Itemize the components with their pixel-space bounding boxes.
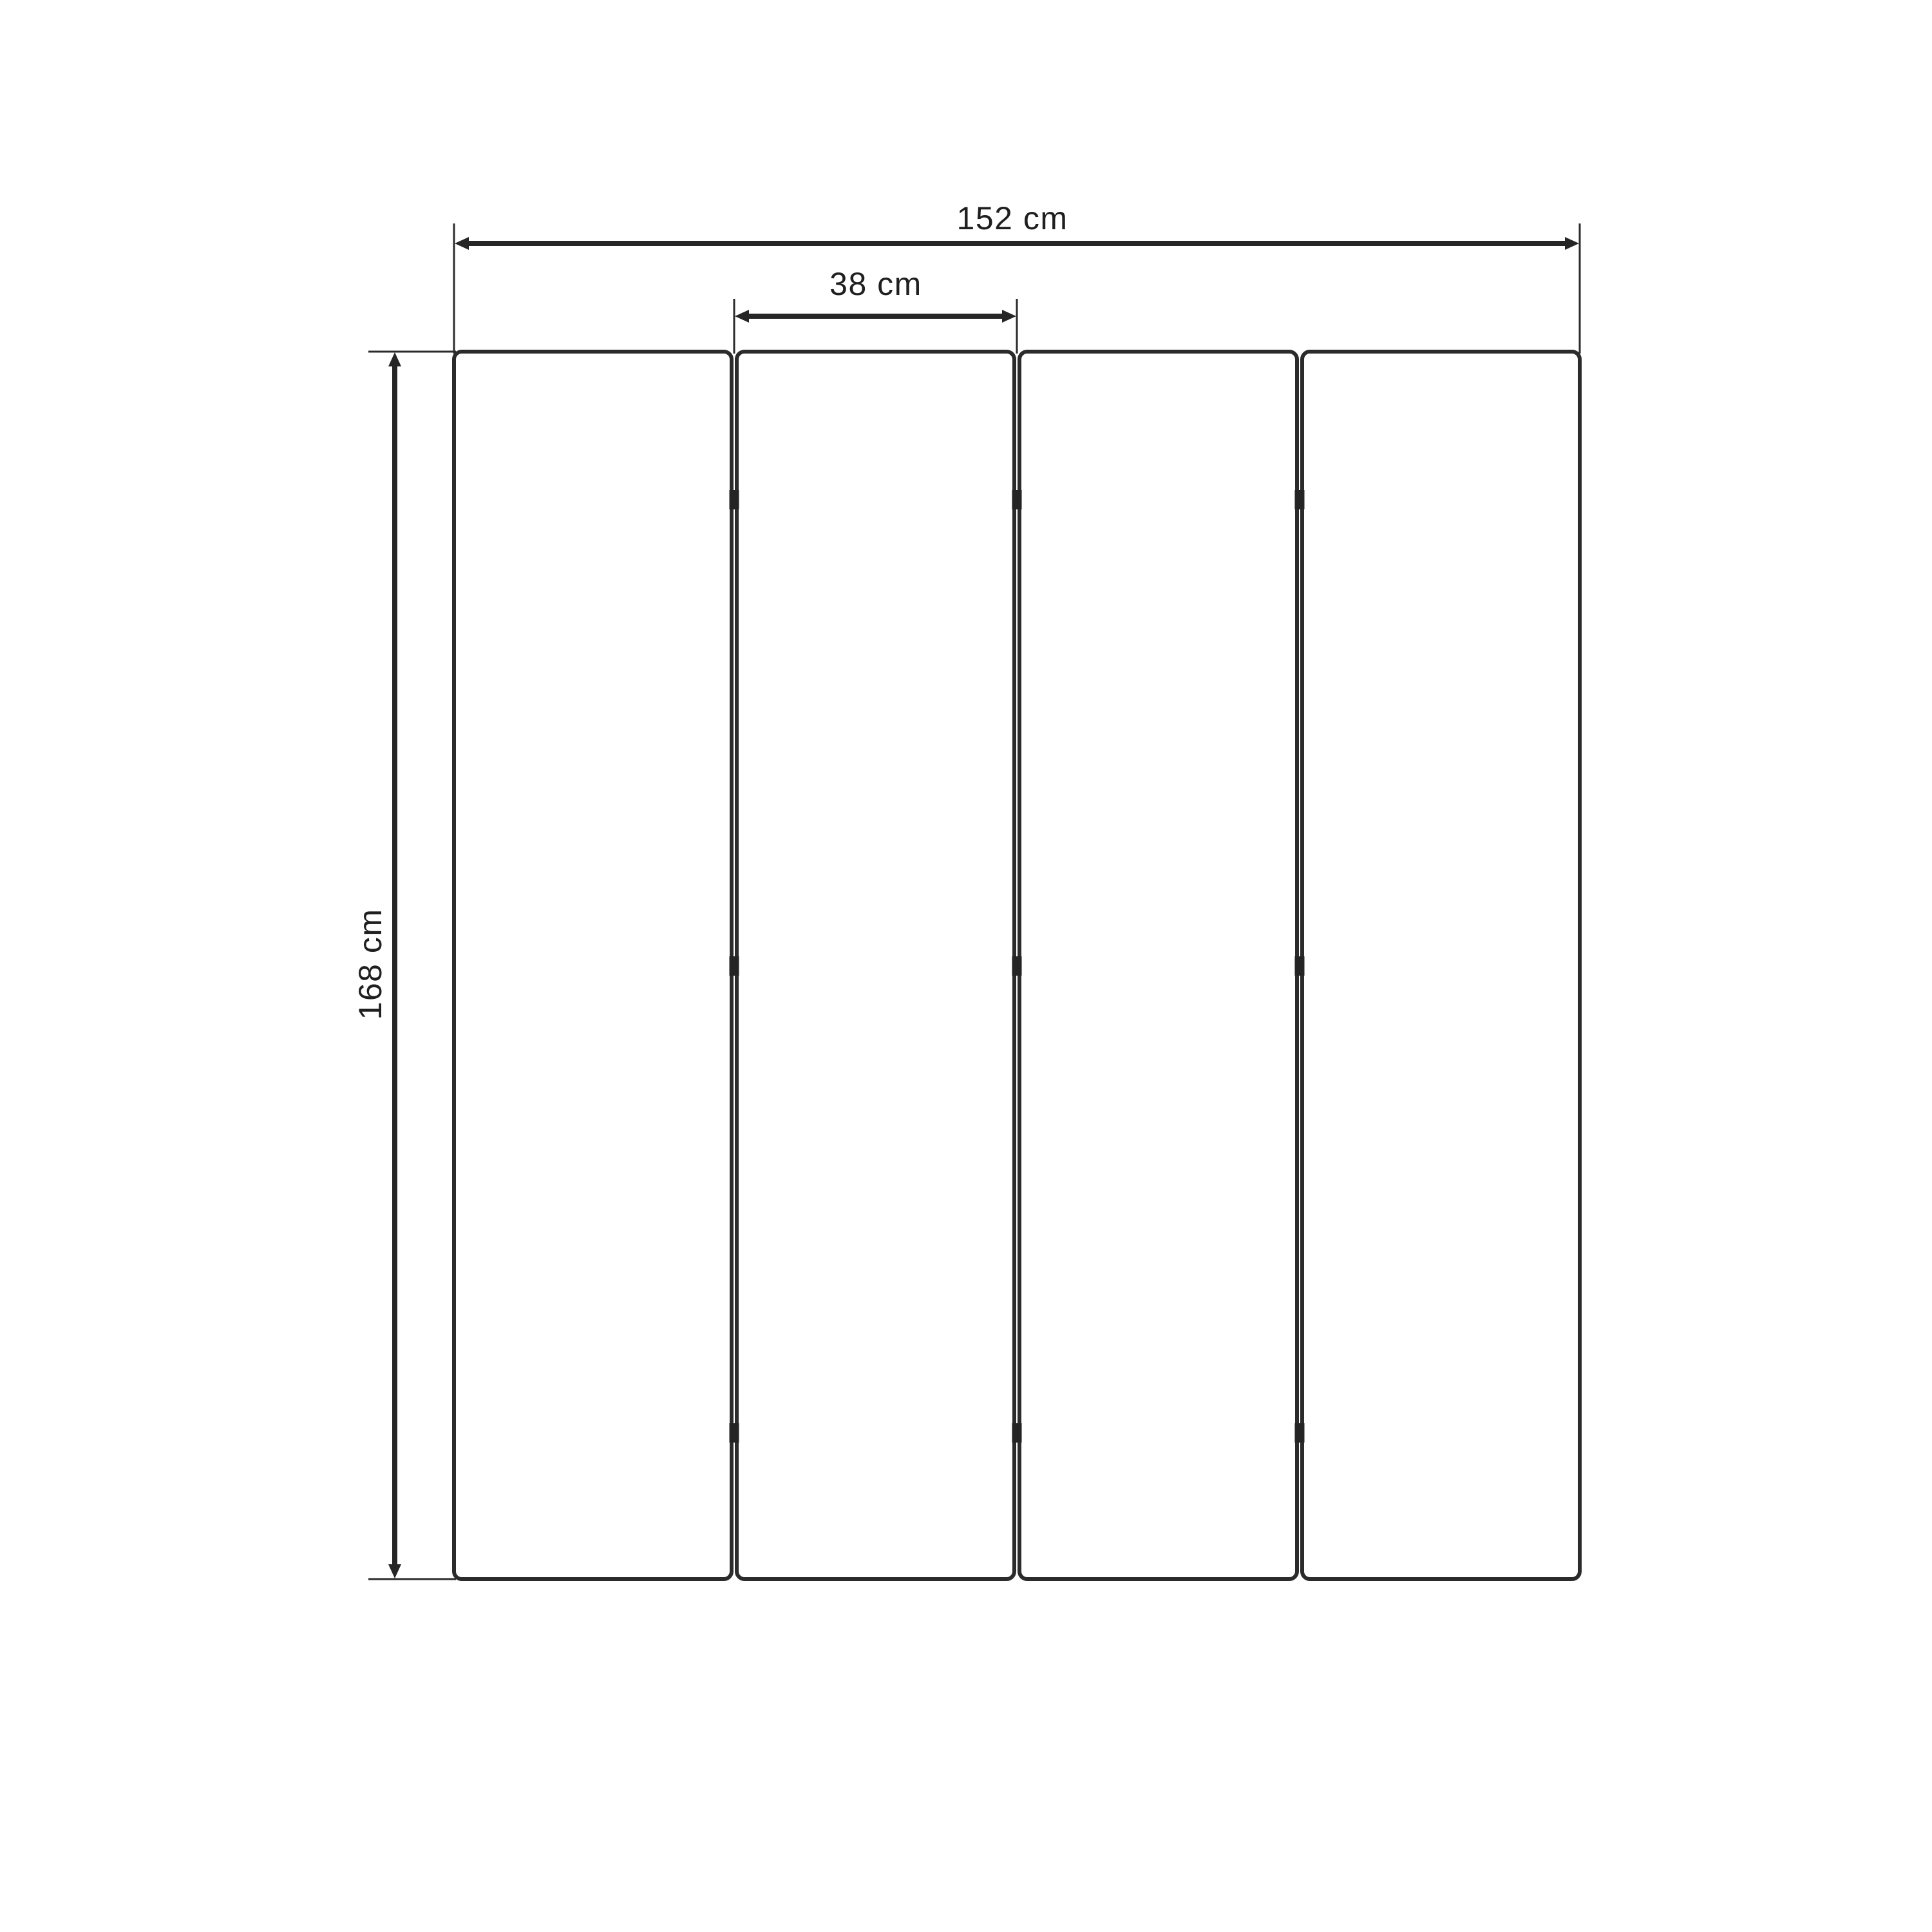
- hinge-middle-gap2: [1012, 956, 1022, 976]
- diagram-canvas: 152 cm 38 cm 168 cm: [0, 0, 1932, 1932]
- panel-3: [1019, 352, 1297, 1579]
- panel-1: [454, 352, 732, 1579]
- dimension-panel-width: 38 cm: [734, 266, 1017, 354]
- hinge-bottom-gap1: [730, 1423, 739, 1443]
- arrow-left-icon: [735, 310, 749, 323]
- arrow-down-icon: [388, 1564, 401, 1578]
- panel-2: [737, 352, 1014, 1579]
- dimension-diagram: 152 cm 38 cm 168 cm: [0, 0, 1932, 1932]
- hinge-bottom-gap2: [1012, 1423, 1022, 1443]
- hinge-top-gap2: [1012, 490, 1022, 509]
- arrow-left-icon: [455, 237, 469, 250]
- panel-4: [1302, 352, 1580, 1579]
- hinge-middle-gap3: [1295, 956, 1305, 976]
- arrow-right-icon: [1565, 237, 1579, 250]
- panel-width-label: 38 cm: [829, 266, 922, 302]
- hinge-top-gap3: [1295, 490, 1305, 509]
- arrow-right-icon: [1002, 310, 1016, 323]
- dimension-height: 168 cm: [352, 352, 456, 1579]
- height-label: 168 cm: [352, 909, 388, 1020]
- hinge-middle-gap1: [730, 956, 739, 976]
- total-width-label: 152 cm: [957, 200, 1068, 236]
- hinge-top-gap1: [730, 490, 739, 509]
- arrow-up-icon: [388, 352, 401, 366]
- hinge-bottom-gap3: [1295, 1423, 1305, 1443]
